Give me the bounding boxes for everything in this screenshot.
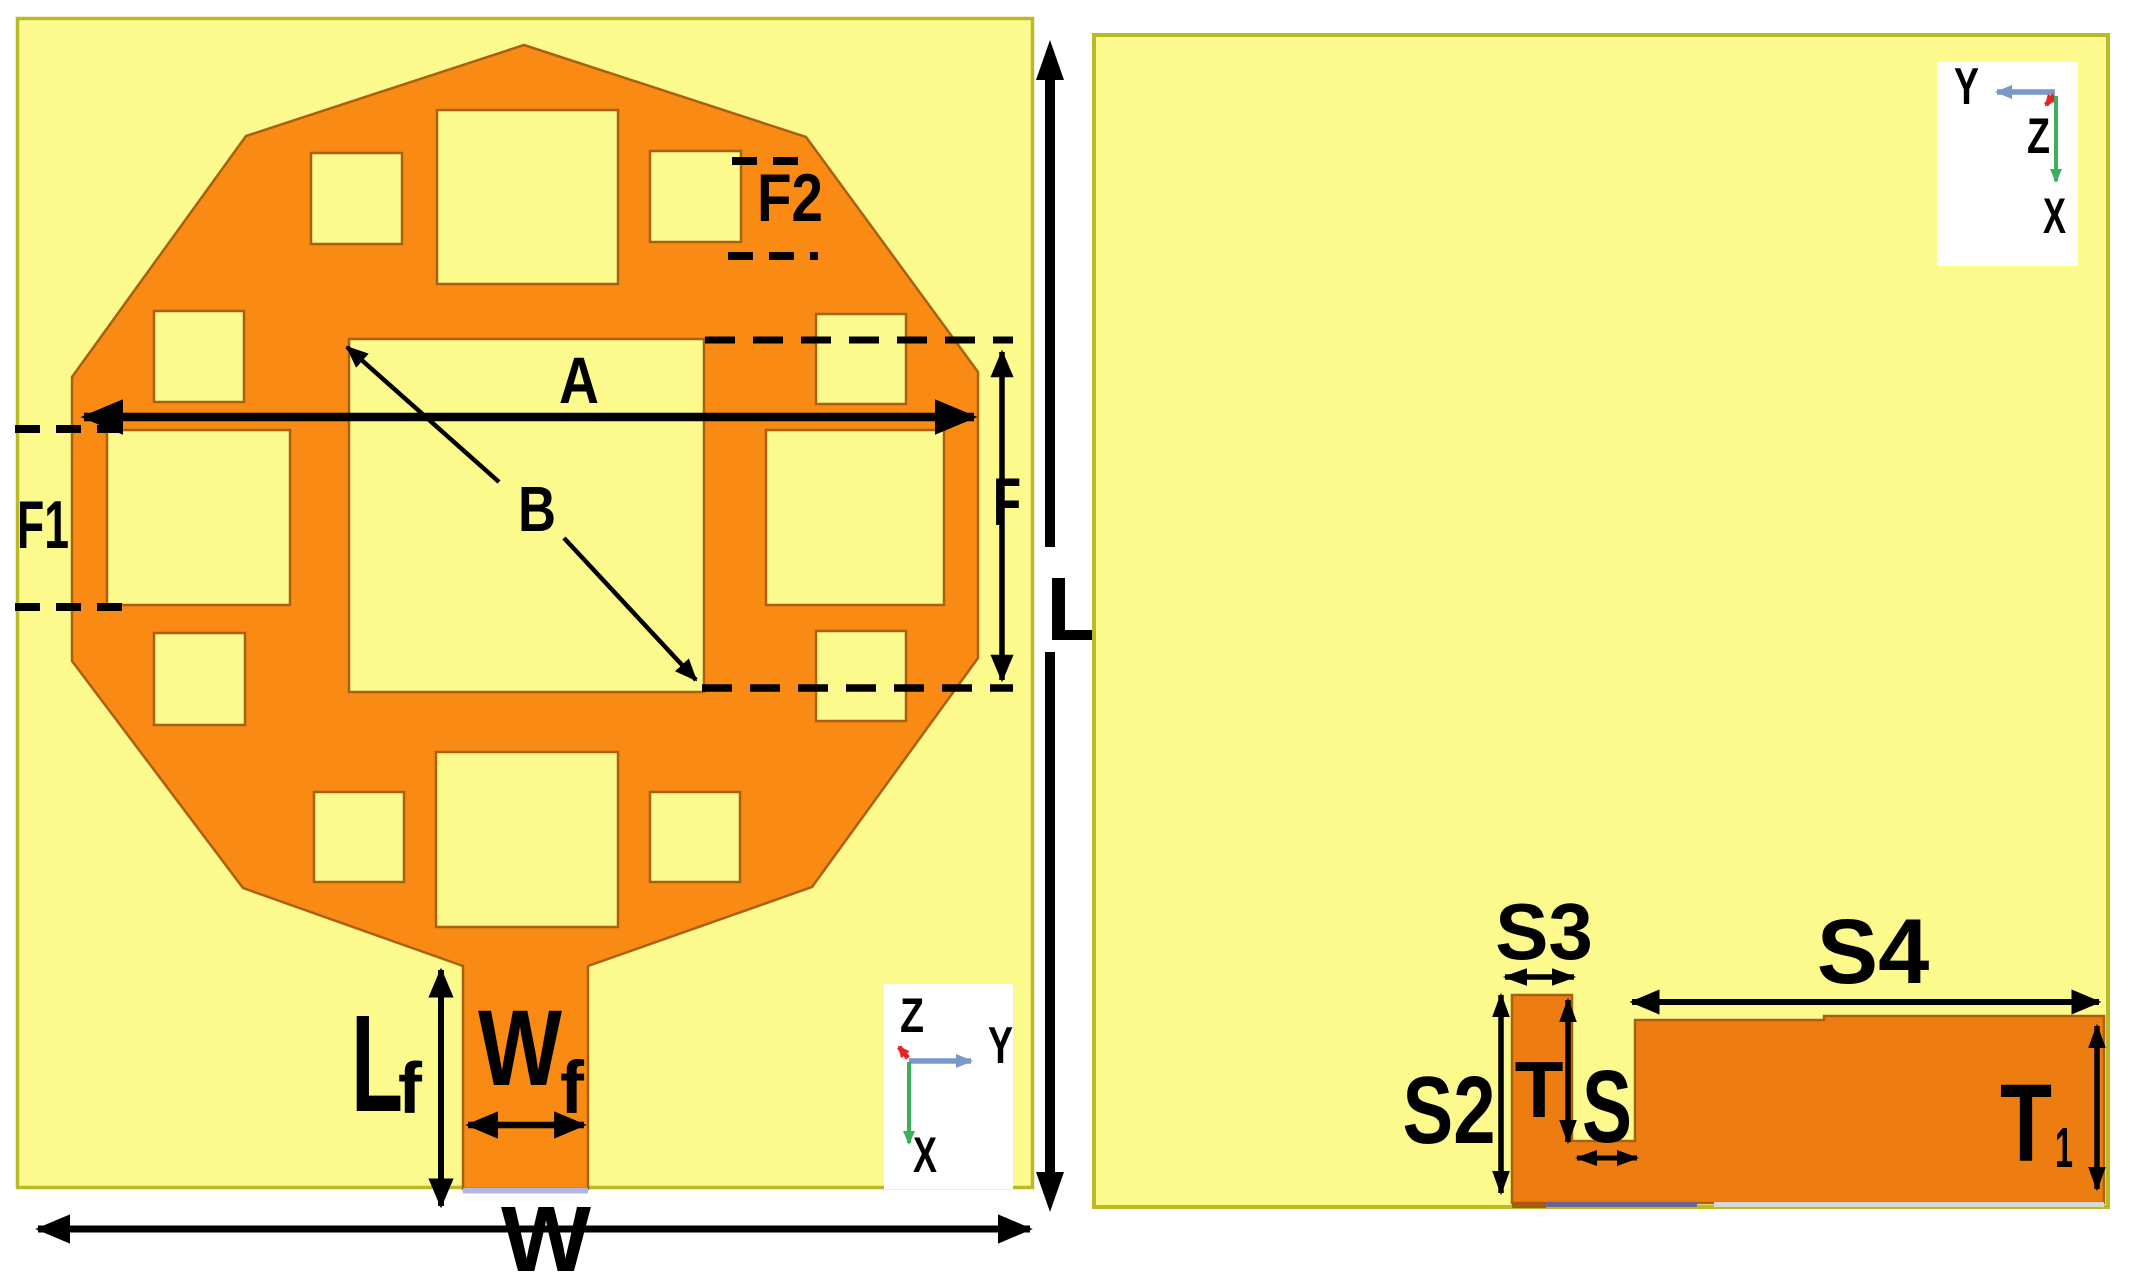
svg-text:F: F	[993, 464, 1021, 540]
svg-text:X: X	[2043, 188, 2066, 244]
svg-text:f: f	[560, 1046, 584, 1129]
svg-text:S: S	[1582, 1049, 1632, 1164]
svg-text:S3: S3	[1495, 887, 1593, 976]
svg-text:T: T	[1515, 1045, 1564, 1134]
svg-text:B: B	[518, 473, 556, 545]
svg-text:W: W	[478, 987, 562, 1108]
svg-text:S4: S4	[1817, 901, 1930, 1003]
svg-text:1: 1	[2055, 1116, 2073, 1180]
svg-text:f: f	[398, 1049, 423, 1129]
svg-text:S2: S2	[1403, 1057, 1496, 1164]
svg-text:Y: Y	[988, 1017, 1013, 1075]
svg-text:F2: F2	[757, 160, 823, 236]
svg-text:W: W	[501, 1187, 591, 1286]
svg-text:L: L	[351, 987, 403, 1141]
svg-text:F1: F1	[17, 487, 69, 563]
svg-text:Z: Z	[900, 990, 924, 1043]
svg-text:T: T	[2000, 1062, 2052, 1185]
svg-text:Y: Y	[1954, 58, 1979, 116]
svg-text:A: A	[559, 343, 599, 417]
svg-text:X: X	[913, 1127, 937, 1183]
svg-text:Z: Z	[2027, 108, 2050, 164]
